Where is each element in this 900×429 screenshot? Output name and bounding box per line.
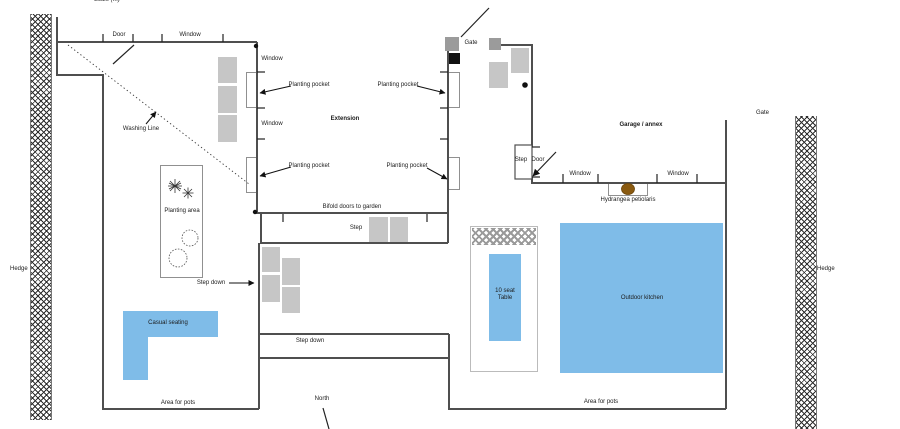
gate-right-label: Gate xyxy=(756,110,769,117)
hedge-left-label: Hedge xyxy=(10,266,28,273)
north-arrow-icon xyxy=(323,408,329,429)
gate-post xyxy=(445,37,459,51)
window-ext-label: Window xyxy=(261,121,282,128)
dot-marker xyxy=(253,210,257,214)
arrow xyxy=(260,167,291,176)
step-down-label: Step down xyxy=(197,280,225,287)
garage-window-label: Window xyxy=(569,171,590,178)
wall-garage-gate xyxy=(495,45,532,147)
door-swing-icon xyxy=(533,152,556,176)
gate-top-label: Gate xyxy=(464,40,477,47)
hedge-right-label: Hedge xyxy=(817,266,835,273)
north-label: North xyxy=(315,396,330,403)
step-label: Step xyxy=(350,225,362,232)
arrow xyxy=(146,112,156,124)
wall-bottom-right xyxy=(449,334,726,409)
hydrangea-label: Hydrangea petiolaris xyxy=(600,197,655,204)
door-top-label: Door xyxy=(112,32,125,39)
window-top-label: Window xyxy=(179,32,200,39)
casual-seating-label: Casual seating xyxy=(148,320,188,327)
arrow xyxy=(260,86,291,93)
wall-left-return xyxy=(57,17,259,409)
planting-pocket-label: Planting pocket xyxy=(288,163,329,170)
opening-ticks xyxy=(103,34,697,222)
annotation-arrows xyxy=(146,86,447,283)
scale-label: Scale (m) xyxy=(94,0,120,4)
hydrangea-plant-icon xyxy=(622,184,635,195)
window-ext-label: Window xyxy=(261,56,282,63)
bifold-label: Bifold doors to garden xyxy=(323,204,382,211)
garage-step-label: Step xyxy=(515,157,527,164)
dot-marker xyxy=(522,82,528,88)
garage-label: Garage / annex xyxy=(619,122,662,129)
area-for-pots-label: Area for pots xyxy=(584,399,618,406)
shrub-icon xyxy=(168,179,182,193)
extension-label: Extension xyxy=(331,116,360,123)
garage-door-label: Door xyxy=(531,157,544,164)
garage-window-label: Window xyxy=(667,171,688,178)
door-swing-icon xyxy=(113,45,134,64)
black-marker xyxy=(449,53,460,64)
planting-pocket-label: Planting pocket xyxy=(386,163,427,170)
plan-linework xyxy=(0,0,900,429)
planting-pocket-label: Planting pocket xyxy=(377,82,418,89)
step-down-band-label: Step down xyxy=(296,338,324,345)
table-label-line2: Table xyxy=(498,295,512,302)
plant-symbols xyxy=(168,179,198,267)
washing-line xyxy=(68,45,249,184)
planting-pocket-label: Planting pocket xyxy=(288,82,329,89)
arrow xyxy=(417,86,445,93)
boundary-walls xyxy=(57,17,726,409)
table-label-line1: 10 seat xyxy=(495,288,515,295)
garden-plan: Scale (m) Hedge Hedge Gate Gate North Do… xyxy=(0,0,900,429)
arrow xyxy=(427,168,447,179)
gate-post xyxy=(489,38,501,50)
planting-area-label: Planting area xyxy=(164,208,199,215)
shrub-icon xyxy=(183,188,194,199)
outdoor-kitchen-label: Outdoor kitchen xyxy=(621,295,663,302)
dot-marker xyxy=(254,44,258,48)
plant-circle-icon xyxy=(182,230,198,246)
washing-line-label: Washing Line xyxy=(123,126,159,133)
plant-circle-icon xyxy=(169,249,187,267)
gate-swing-icon xyxy=(461,8,489,37)
area-for-pots-label: Area for pots xyxy=(161,400,195,407)
point-markers xyxy=(253,37,528,214)
door-swings xyxy=(113,8,556,429)
